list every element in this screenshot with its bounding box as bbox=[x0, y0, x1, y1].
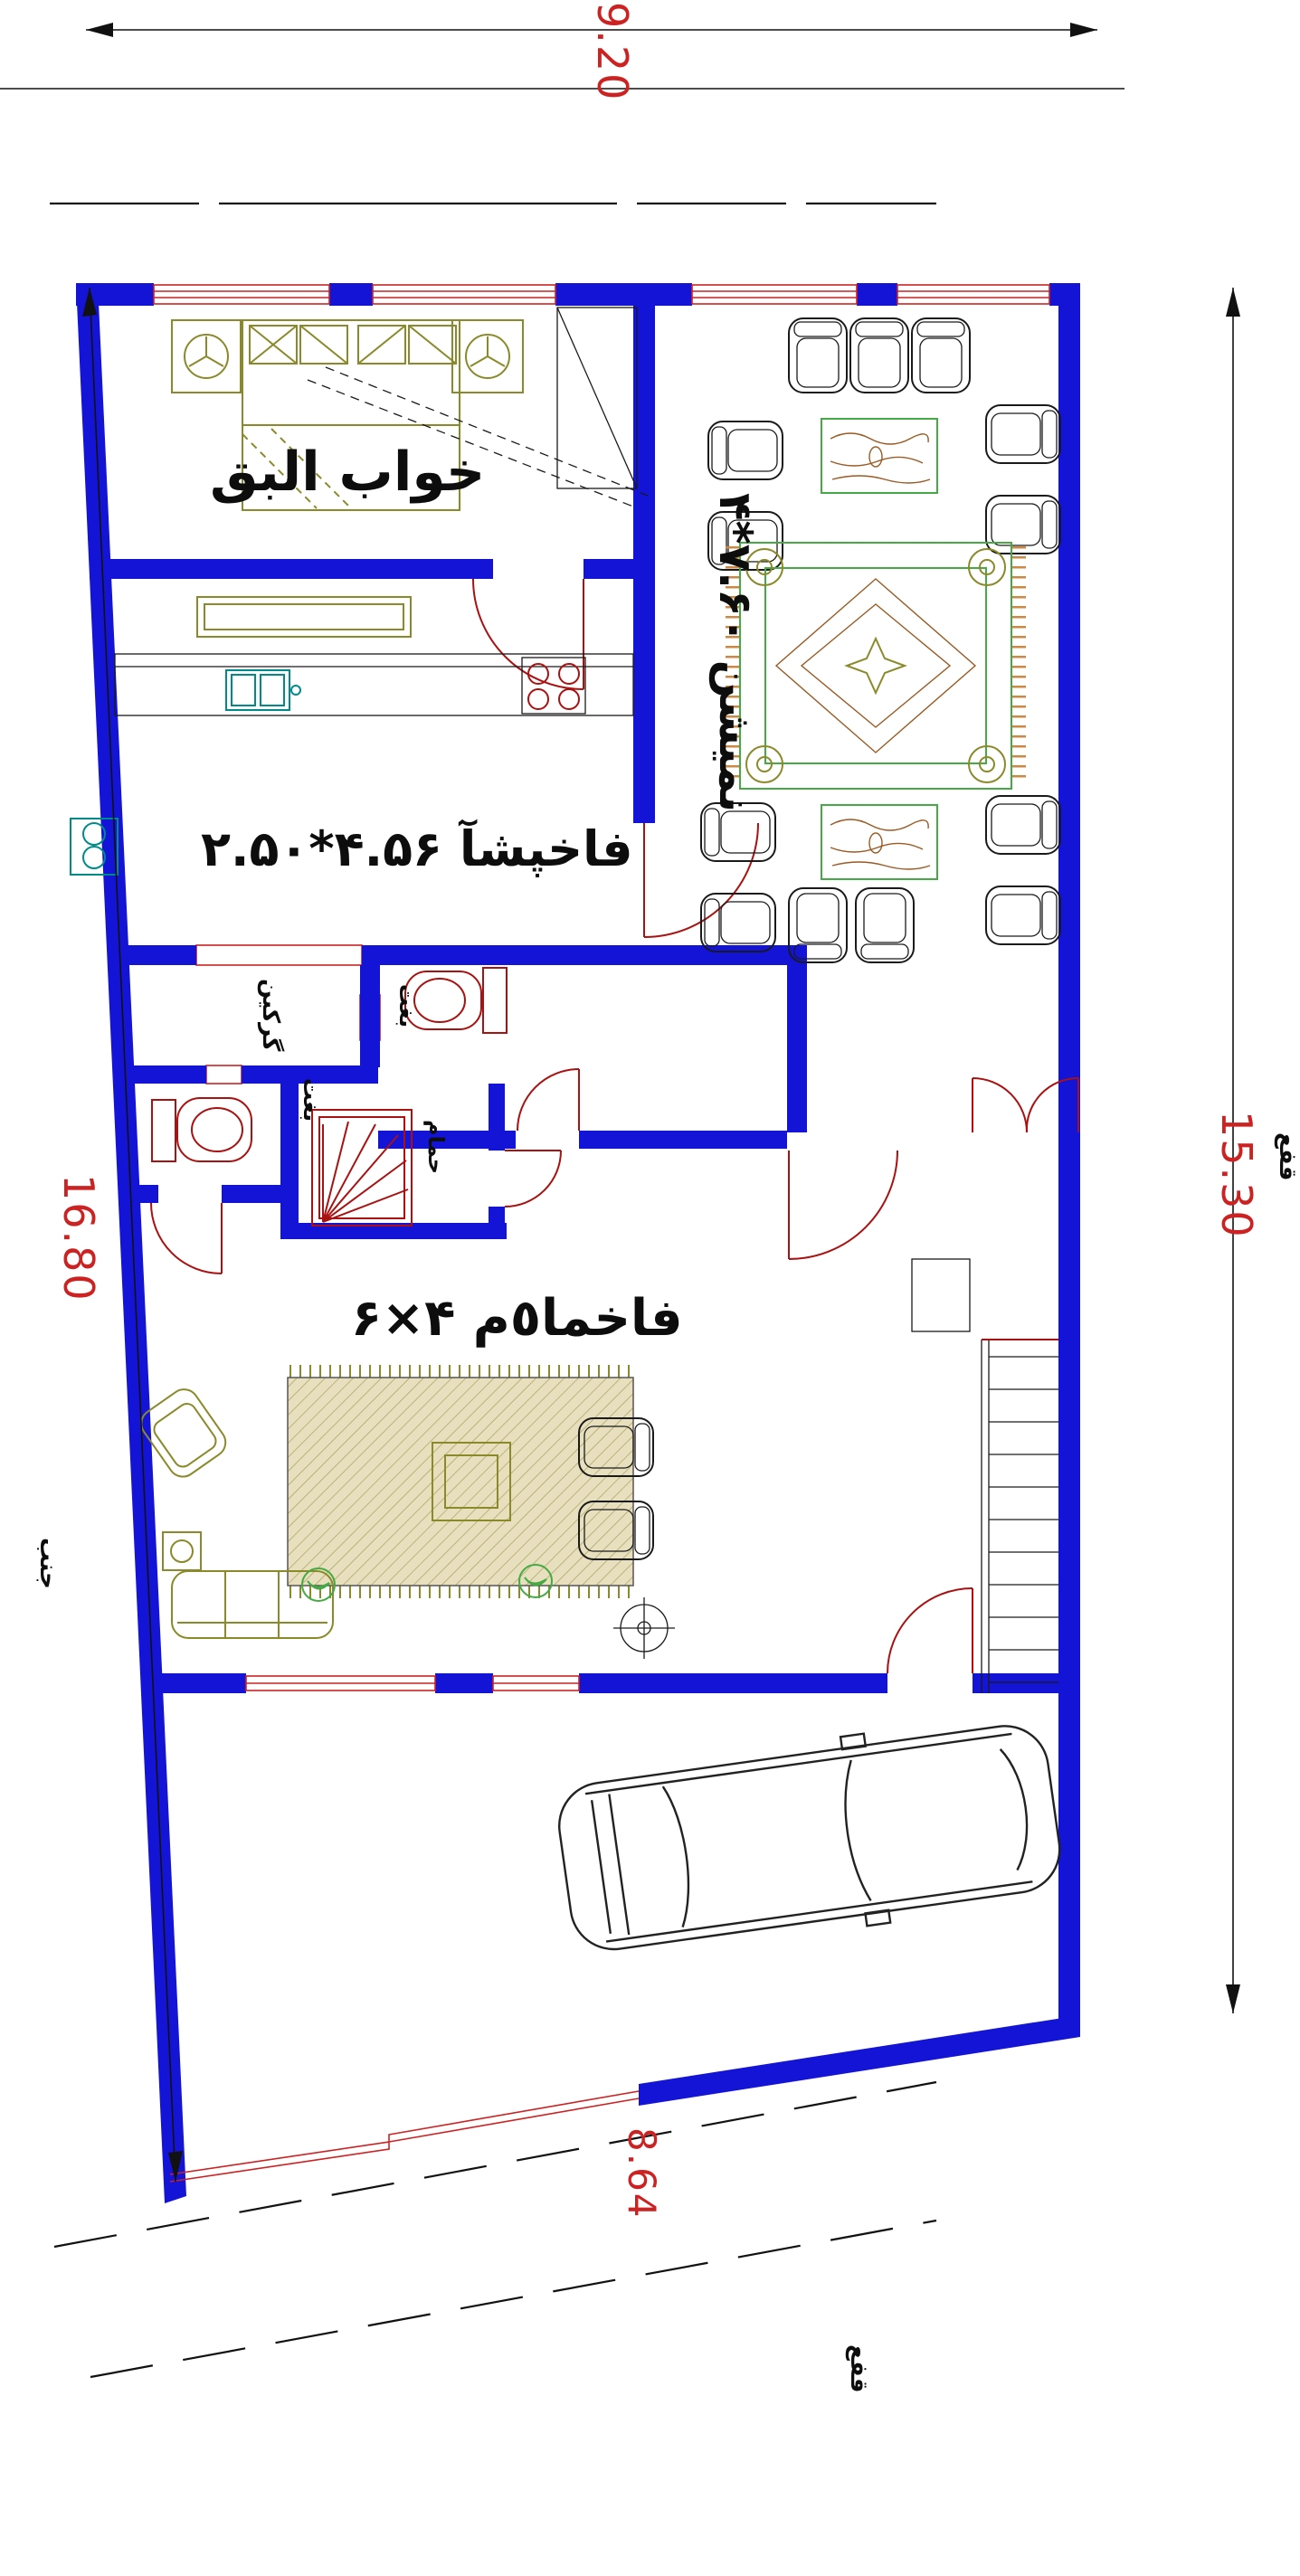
window-bath-top bbox=[196, 945, 362, 965]
window-top-1 bbox=[154, 285, 329, 304]
nightstand-left bbox=[172, 320, 241, 393]
coffee-table-bottom bbox=[821, 805, 937, 879]
coffee-table-top bbox=[821, 419, 937, 493]
street-label-left: بنج bbox=[36, 1538, 60, 1589]
bedroom-label: قبلا باوخ bbox=[210, 445, 485, 499]
lamp-table bbox=[163, 1532, 201, 1570]
shower-label: مامح bbox=[425, 1120, 447, 1174]
hall-furniture bbox=[136, 1371, 675, 1659]
street-label-right: عفق bbox=[1276, 1132, 1299, 1181]
wc-upper-label: تغب bbox=[396, 984, 418, 1028]
dimension-right: 15.30 bbox=[1216, 1111, 1257, 1239]
dimension-left: 16.80 bbox=[58, 1174, 100, 1302]
dimension-top: 9.20 bbox=[592, 2, 633, 101]
wc-lower-label: تغب bbox=[300, 1078, 322, 1122]
car bbox=[552, 1709, 1067, 1966]
toilet-lower bbox=[152, 1098, 251, 1161]
corridor-door bbox=[789, 1151, 897, 1259]
hall-rug bbox=[288, 1371, 633, 1592]
kitchen-label: ۲.۵۰*۴.۵۶ آشپخاف bbox=[201, 825, 633, 874]
window-top-3 bbox=[692, 285, 857, 304]
shower-tray bbox=[312, 1110, 412, 1226]
stair-landing bbox=[912, 1259, 970, 1331]
window-top-2 bbox=[373, 285, 555, 304]
top-dimension bbox=[0, 23, 1124, 89]
toilet-upper bbox=[405, 968, 507, 1033]
window-laundry bbox=[206, 1065, 242, 1084]
toilet-room-door bbox=[151, 1203, 222, 1274]
yard-door bbox=[887, 1588, 973, 1673]
window-hall-1 bbox=[246, 1676, 435, 1690]
shower-door bbox=[505, 1151, 561, 1207]
boundary-lines bbox=[170, 2091, 639, 2182]
bathroom-fixtures bbox=[152, 968, 507, 1226]
dimension-bottom: 8.64 bbox=[622, 2127, 660, 2220]
kitchen-sink bbox=[226, 670, 300, 710]
wc-door bbox=[517, 1069, 579, 1131]
floor-plan-canvas: 9.20 15.30 16.80 8.64 قبلا باوخ ۲.۵۰*۴.۵… bbox=[0, 0, 1300, 2576]
road-bottom bbox=[54, 2082, 936, 2377]
nightstand-right bbox=[452, 320, 523, 393]
street-label-bottom: عفق bbox=[847, 2344, 870, 2393]
ceiling-fan bbox=[613, 1597, 675, 1659]
hall-label: ۶×۴ م٥امخاف bbox=[351, 1293, 683, 1344]
laundry-label: نیکرگ bbox=[259, 979, 282, 1051]
window-top-4 bbox=[897, 285, 1049, 304]
living-room-label: ۴*۷.۶۰ نشیمن bbox=[713, 493, 758, 812]
persian-rug bbox=[733, 543, 1019, 789]
stairs bbox=[912, 1259, 1058, 1693]
window-hall-2 bbox=[493, 1676, 579, 1690]
